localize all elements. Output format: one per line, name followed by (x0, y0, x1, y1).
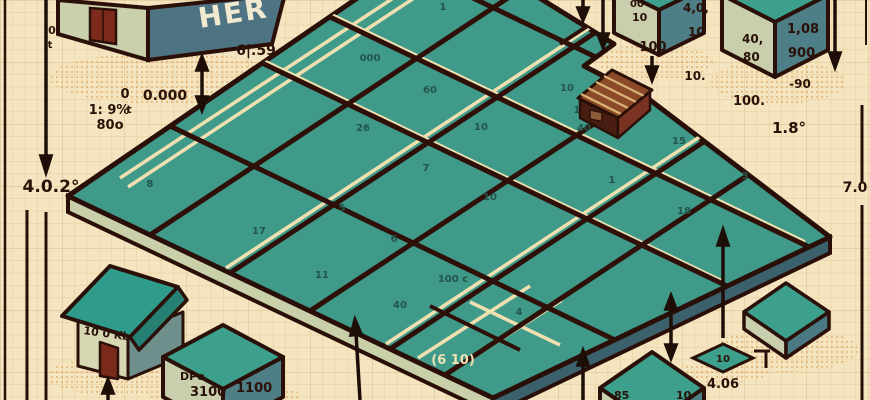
annotation-label: -90 (789, 77, 811, 91)
block-sw-label: 1100 (236, 381, 272, 396)
parcel-label: 7 (423, 163, 430, 174)
annotation-label: t (48, 40, 53, 51)
annotation-label: 80o (96, 118, 123, 133)
cube-s-label: 10 (676, 389, 692, 400)
parcel-label: 40 (577, 123, 591, 134)
door (100, 342, 118, 379)
parcel-label: 17 (252, 226, 266, 237)
annotation-label: 7.0 (843, 180, 868, 196)
block-sw-label: DPo (180, 370, 205, 383)
diamond-label: 10 (716, 354, 730, 365)
parcel-label: 1 (609, 175, 616, 186)
block-sw-label: 3100 (190, 385, 226, 400)
annotation-label: 0 (120, 87, 129, 102)
parcel-label: 40 (393, 300, 407, 311)
parcel-label: 6 (391, 234, 398, 245)
parcel-label: 3 (742, 171, 749, 182)
parcel-label: 100 c (438, 274, 468, 285)
cube2-label: 1,08 (787, 22, 819, 37)
cube2-label: 80 (743, 50, 760, 64)
annotation-label: 4.06 (707, 377, 739, 392)
cube2-label: 40, (742, 32, 763, 46)
annotation-label: 6|.59 (236, 43, 276, 59)
annotation-label: 1.8° (772, 119, 806, 137)
isometric-parcel-diagram: 1000601014026101571058617131811100 c404(… (0, 0, 870, 400)
cube2-label: 900 (788, 46, 815, 61)
cube1-label: 4,0, (683, 1, 709, 15)
parcel-label: 15 (672, 136, 686, 147)
parcel-label: 000 (360, 53, 381, 64)
annotation-label: 0.000 (143, 88, 188, 104)
annotation-label: 10. (684, 69, 705, 83)
illustration-canvas: 1000601014026101571058617131811100 c404(… (0, 0, 870, 400)
cube1-label: 10 (632, 11, 648, 24)
hut-window (590, 110, 602, 122)
parcel-label: 5 (339, 203, 346, 214)
parcel-label: 11 (315, 270, 329, 281)
parcel-label: 4 (516, 307, 523, 318)
parcel-label: 8 (147, 179, 154, 190)
parcel-label: 10 (474, 122, 488, 133)
cube1-label: 00 (630, 0, 644, 10)
annotation-label: 100 (639, 40, 666, 55)
annotation-label: 1: 9% (89, 103, 130, 118)
parcel-label: (6 10) (431, 353, 475, 368)
parcel-label: 10 (560, 83, 574, 94)
parcel-label: 1 (440, 2, 447, 13)
annotation-label: 4.0.2° (23, 177, 80, 197)
cube1-label: 10 (688, 25, 705, 39)
cube-s-label: 85 (614, 389, 629, 400)
annotation-label: 100. (733, 94, 765, 109)
parcel-label: 10 (483, 192, 497, 203)
parcel-label: 26 (356, 123, 370, 134)
annotation-label: 0 (48, 24, 56, 37)
parcel-label: 60 (423, 85, 437, 96)
parcel-label: 18 (677, 206, 691, 217)
